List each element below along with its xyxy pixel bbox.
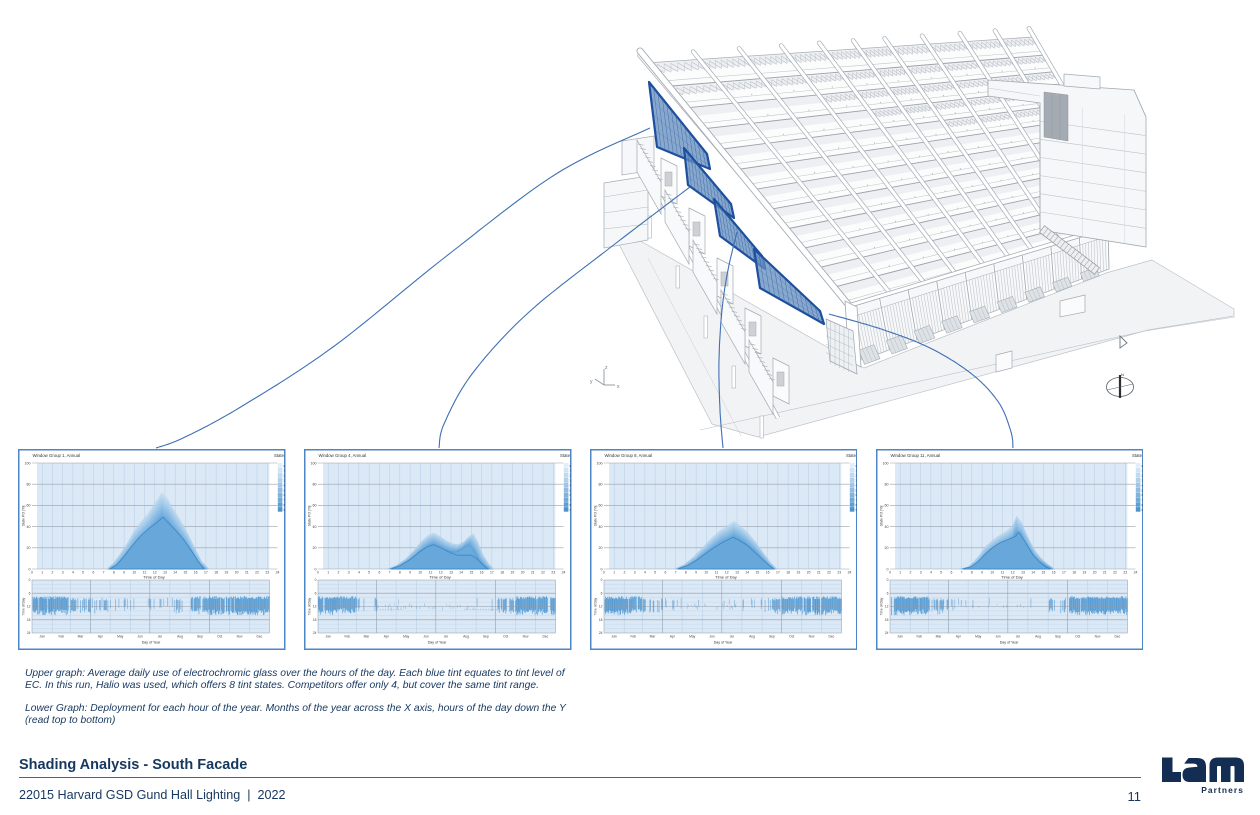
svg-text:Apr: Apr [98,635,104,639]
svg-text:Sep: Sep [483,635,489,639]
svg-text:18: 18 [598,618,602,622]
svg-text:21: 21 [245,571,249,575]
svg-text:24: 24 [27,631,31,635]
svg-text:6: 6 [315,591,317,595]
svg-text:22: 22 [827,571,831,575]
svg-text:5: 5 [654,571,656,575]
svg-text:May: May [403,635,410,639]
svg-text:24: 24 [313,631,317,635]
svg-text:State Pct [%]: State Pct [%] [593,506,597,527]
svg-text:23: 23 [551,571,555,575]
svg-text:60: 60 [313,504,317,508]
svg-text:20: 20 [884,546,888,550]
svg-text:Time of Day: Time of Day [22,597,26,615]
svg-text:Feb: Feb [344,635,350,639]
svg-text:12: 12 [27,605,31,609]
svg-text:9: 9 [981,571,983,575]
svg-text:60: 60 [27,504,31,508]
svg-text:6: 6 [664,571,666,575]
svg-text:Day of Year: Day of Year [999,641,1018,645]
svg-text:24: 24 [598,631,602,635]
svg-text:Sep: Sep [1054,635,1060,639]
svg-text:Time of Day: Time of Day [715,575,736,580]
svg-text:18: 18 [884,618,888,622]
svg-text:40: 40 [313,525,317,529]
svg-text:60: 60 [884,504,888,508]
svg-text:Dec: Dec [828,635,834,639]
svg-text:12: 12 [598,605,602,609]
svg-text:60: 60 [598,504,602,508]
svg-text:Aug: Aug [463,635,469,639]
svg-text:100: 100 [311,461,317,465]
svg-text:3: 3 [348,571,350,575]
svg-text:24: 24 [884,631,888,635]
svg-text:Sep: Sep [768,635,774,639]
svg-text:Nov: Nov [1094,635,1100,639]
svg-text:23: 23 [265,571,269,575]
svg-text:22: 22 [255,571,259,575]
svg-text:Jul: Jul [444,635,448,639]
svg-text:Day of Year: Day of Year [428,641,447,645]
svg-text:Sep: Sep [197,635,203,639]
svg-text:Dec: Dec [1114,635,1120,639]
svg-text:17: 17 [776,571,780,575]
svg-text:23: 23 [1123,571,1127,575]
svg-text:14: 14 [745,571,749,575]
svg-text:4: 4 [72,571,74,575]
svg-text:9: 9 [695,571,697,575]
svg-text:12: 12 [313,605,317,609]
svg-text:17: 17 [490,571,494,575]
svg-text:16: 16 [1051,571,1055,575]
svg-text:14: 14 [173,571,177,575]
svg-text:18: 18 [500,571,504,575]
svg-text:23: 23 [837,571,841,575]
svg-text:8: 8 [399,571,401,575]
svg-text:100: 100 [25,461,31,465]
svg-text:Feb: Feb [916,635,922,639]
svg-text:1: 1 [327,571,329,575]
svg-text:0: 0 [315,578,317,582]
svg-text:17: 17 [1062,571,1066,575]
svg-text:18: 18 [786,571,790,575]
svg-text:5: 5 [82,571,84,575]
svg-text:80: 80 [313,483,317,487]
svg-text:Apr: Apr [669,635,675,639]
svg-text:May: May [975,635,982,639]
svg-text:20: 20 [598,546,602,550]
svg-text:Window Group 4, Annual: Window Group 4, Annual [319,453,367,458]
svg-text:19: 19 [1082,571,1086,575]
svg-text:10: 10 [704,571,708,575]
svg-text:24: 24 [1133,571,1137,575]
svg-text:20: 20 [235,571,239,575]
svg-text:9: 9 [409,571,411,575]
svg-text:4: 4 [358,571,360,575]
svg-text:State: State [274,453,285,458]
svg-text:May: May [117,635,124,639]
svg-text:8: 8 [684,571,686,575]
svg-text:6: 6 [378,571,380,575]
svg-text:Jun: Jun [137,635,142,639]
svg-text:Mar: Mar [935,635,942,639]
svg-text:2: 2 [52,571,54,575]
svg-text:5: 5 [368,571,370,575]
svg-text:18: 18 [27,618,31,622]
svg-text:0: 0 [31,571,33,575]
svg-text:3: 3 [919,571,921,575]
svg-text:Mar: Mar [649,635,656,639]
svg-text:State: State [1131,453,1142,458]
svg-text:16: 16 [194,571,198,575]
svg-text:15: 15 [755,571,759,575]
svg-text:Jun: Jun [995,635,1000,639]
svg-text:6: 6 [950,571,952,575]
svg-text:0: 0 [29,578,31,582]
svg-text:z: z [605,365,608,371]
svg-text:Window Group 8, Annual: Window Group 8, Annual [604,453,652,458]
svg-text:9: 9 [123,571,125,575]
svg-text:19: 19 [796,571,800,575]
svg-text:Time of Day: Time of Day [879,597,883,615]
svg-text:Day of Year: Day of Year [142,641,161,645]
svg-text:40: 40 [884,525,888,529]
svg-text:Jul: Jul [729,635,733,639]
svg-text:6: 6 [886,591,888,595]
svg-text:7: 7 [674,571,676,575]
svg-text:3: 3 [633,571,635,575]
svg-text:10: 10 [990,571,994,575]
svg-text:State: State [560,453,571,458]
svg-text:Oct: Oct [217,635,222,639]
svg-text:x: x [617,384,620,390]
svg-text:Apr: Apr [384,635,390,639]
svg-text:Apr: Apr [955,635,961,639]
svg-text:Partners: Partners [1201,785,1244,795]
svg-text:5: 5 [940,571,942,575]
svg-text:1: 1 [899,571,901,575]
svg-text:Dec: Dec [256,635,262,639]
svg-text:15: 15 [470,571,474,575]
svg-text:1: 1 [613,571,615,575]
svg-text:8: 8 [113,571,115,575]
svg-text:2: 2 [909,571,911,575]
svg-text:14: 14 [1031,571,1035,575]
svg-text:20: 20 [313,546,317,550]
svg-text:7: 7 [103,571,105,575]
svg-text:80: 80 [27,483,31,487]
svg-text:Aug: Aug [749,635,755,639]
svg-text:12: 12 [884,605,888,609]
svg-text:Nov: Nov [808,635,814,639]
svg-text:24: 24 [276,571,280,575]
svg-text:100: 100 [882,461,888,465]
svg-text:24: 24 [562,571,566,575]
svg-text:80: 80 [598,483,602,487]
svg-text:10: 10 [418,571,422,575]
svg-text:21: 21 [816,571,820,575]
svg-text:0: 0 [600,578,602,582]
svg-text:16: 16 [765,571,769,575]
svg-text:Feb: Feb [58,635,64,639]
svg-text:0: 0 [317,571,319,575]
svg-text:19: 19 [511,571,515,575]
svg-text:1: 1 [41,571,43,575]
svg-text:20: 20 [806,571,810,575]
svg-text:3: 3 [62,571,64,575]
svg-text:Time of Day: Time of Day [143,575,164,580]
svg-text:21: 21 [531,571,535,575]
svg-text:80: 80 [884,483,888,487]
svg-text:6: 6 [600,591,602,595]
svg-text:21: 21 [1102,571,1106,575]
svg-text:y: y [590,379,593,385]
svg-text:Aug: Aug [1035,635,1041,639]
svg-text:14: 14 [459,571,463,575]
svg-text:Jul: Jul [158,635,162,639]
svg-text:18: 18 [1072,571,1076,575]
svg-text:Oct: Oct [789,635,794,639]
svg-text:20: 20 [1092,571,1096,575]
svg-text:Feb: Feb [630,635,636,639]
svg-text:6: 6 [92,571,94,575]
svg-text:19: 19 [225,571,229,575]
svg-text:State Pct [%]: State Pct [%] [22,506,26,527]
svg-text:Window Group 11, Annual: Window Group 11, Annual [890,453,940,458]
svg-text:40: 40 [27,525,31,529]
svg-text:17: 17 [204,571,208,575]
svg-text:Jan: Jan [897,635,902,639]
svg-text:0: 0 [886,578,888,582]
svg-text:Time of Day: Time of Day [308,597,312,615]
svg-text:18: 18 [313,618,317,622]
svg-text:Time of Day: Time of Day [429,575,450,580]
svg-text:Day of Year: Day of Year [713,641,732,645]
svg-text:100: 100 [596,461,602,465]
svg-text:State: State [845,453,856,458]
svg-text:Jan: Jan [39,635,44,639]
svg-text:Oct: Oct [1075,635,1080,639]
svg-text:20: 20 [521,571,525,575]
svg-text:Jun: Jun [423,635,428,639]
svg-text:15: 15 [1041,571,1045,575]
svg-text:Window Group 1, Annual: Window Group 1, Annual [33,453,81,458]
svg-text:Jun: Jun [709,635,714,639]
svg-text:Time of Day: Time of Day [593,597,597,615]
svg-text:7: 7 [960,571,962,575]
svg-text:15: 15 [184,571,188,575]
svg-text:2: 2 [623,571,625,575]
svg-text:N: N [1121,372,1124,377]
svg-text:22: 22 [541,571,545,575]
svg-text:4: 4 [643,571,645,575]
svg-text:Time of Day: Time of Day [1001,575,1022,580]
svg-text:State Pct [%]: State Pct [%] [879,506,883,527]
svg-text:8: 8 [970,571,972,575]
svg-text:20: 20 [27,546,31,550]
svg-text:Mar: Mar [364,635,371,639]
svg-text:Nov: Nov [523,635,529,639]
svg-text:May: May [689,635,696,639]
svg-text:Dec: Dec [542,635,548,639]
svg-text:7: 7 [389,571,391,575]
svg-text:Jan: Jan [325,635,330,639]
svg-text:2: 2 [338,571,340,575]
svg-text:State Pct [%]: State Pct [%] [308,506,312,527]
svg-text:6: 6 [29,591,31,595]
svg-text:18: 18 [214,571,218,575]
svg-text:Mar: Mar [78,635,85,639]
svg-text:24: 24 [847,571,851,575]
svg-text:22: 22 [1113,571,1117,575]
svg-text:Nov: Nov [237,635,243,639]
svg-text:0: 0 [603,571,605,575]
svg-text:16: 16 [480,571,484,575]
svg-text:40: 40 [598,525,602,529]
svg-text:4: 4 [929,571,931,575]
svg-text:Jan: Jan [611,635,616,639]
svg-text:0: 0 [889,571,891,575]
svg-text:Aug: Aug [177,635,183,639]
svg-text:Jul: Jul [1015,635,1019,639]
svg-text:Oct: Oct [503,635,508,639]
svg-text:10: 10 [132,571,136,575]
